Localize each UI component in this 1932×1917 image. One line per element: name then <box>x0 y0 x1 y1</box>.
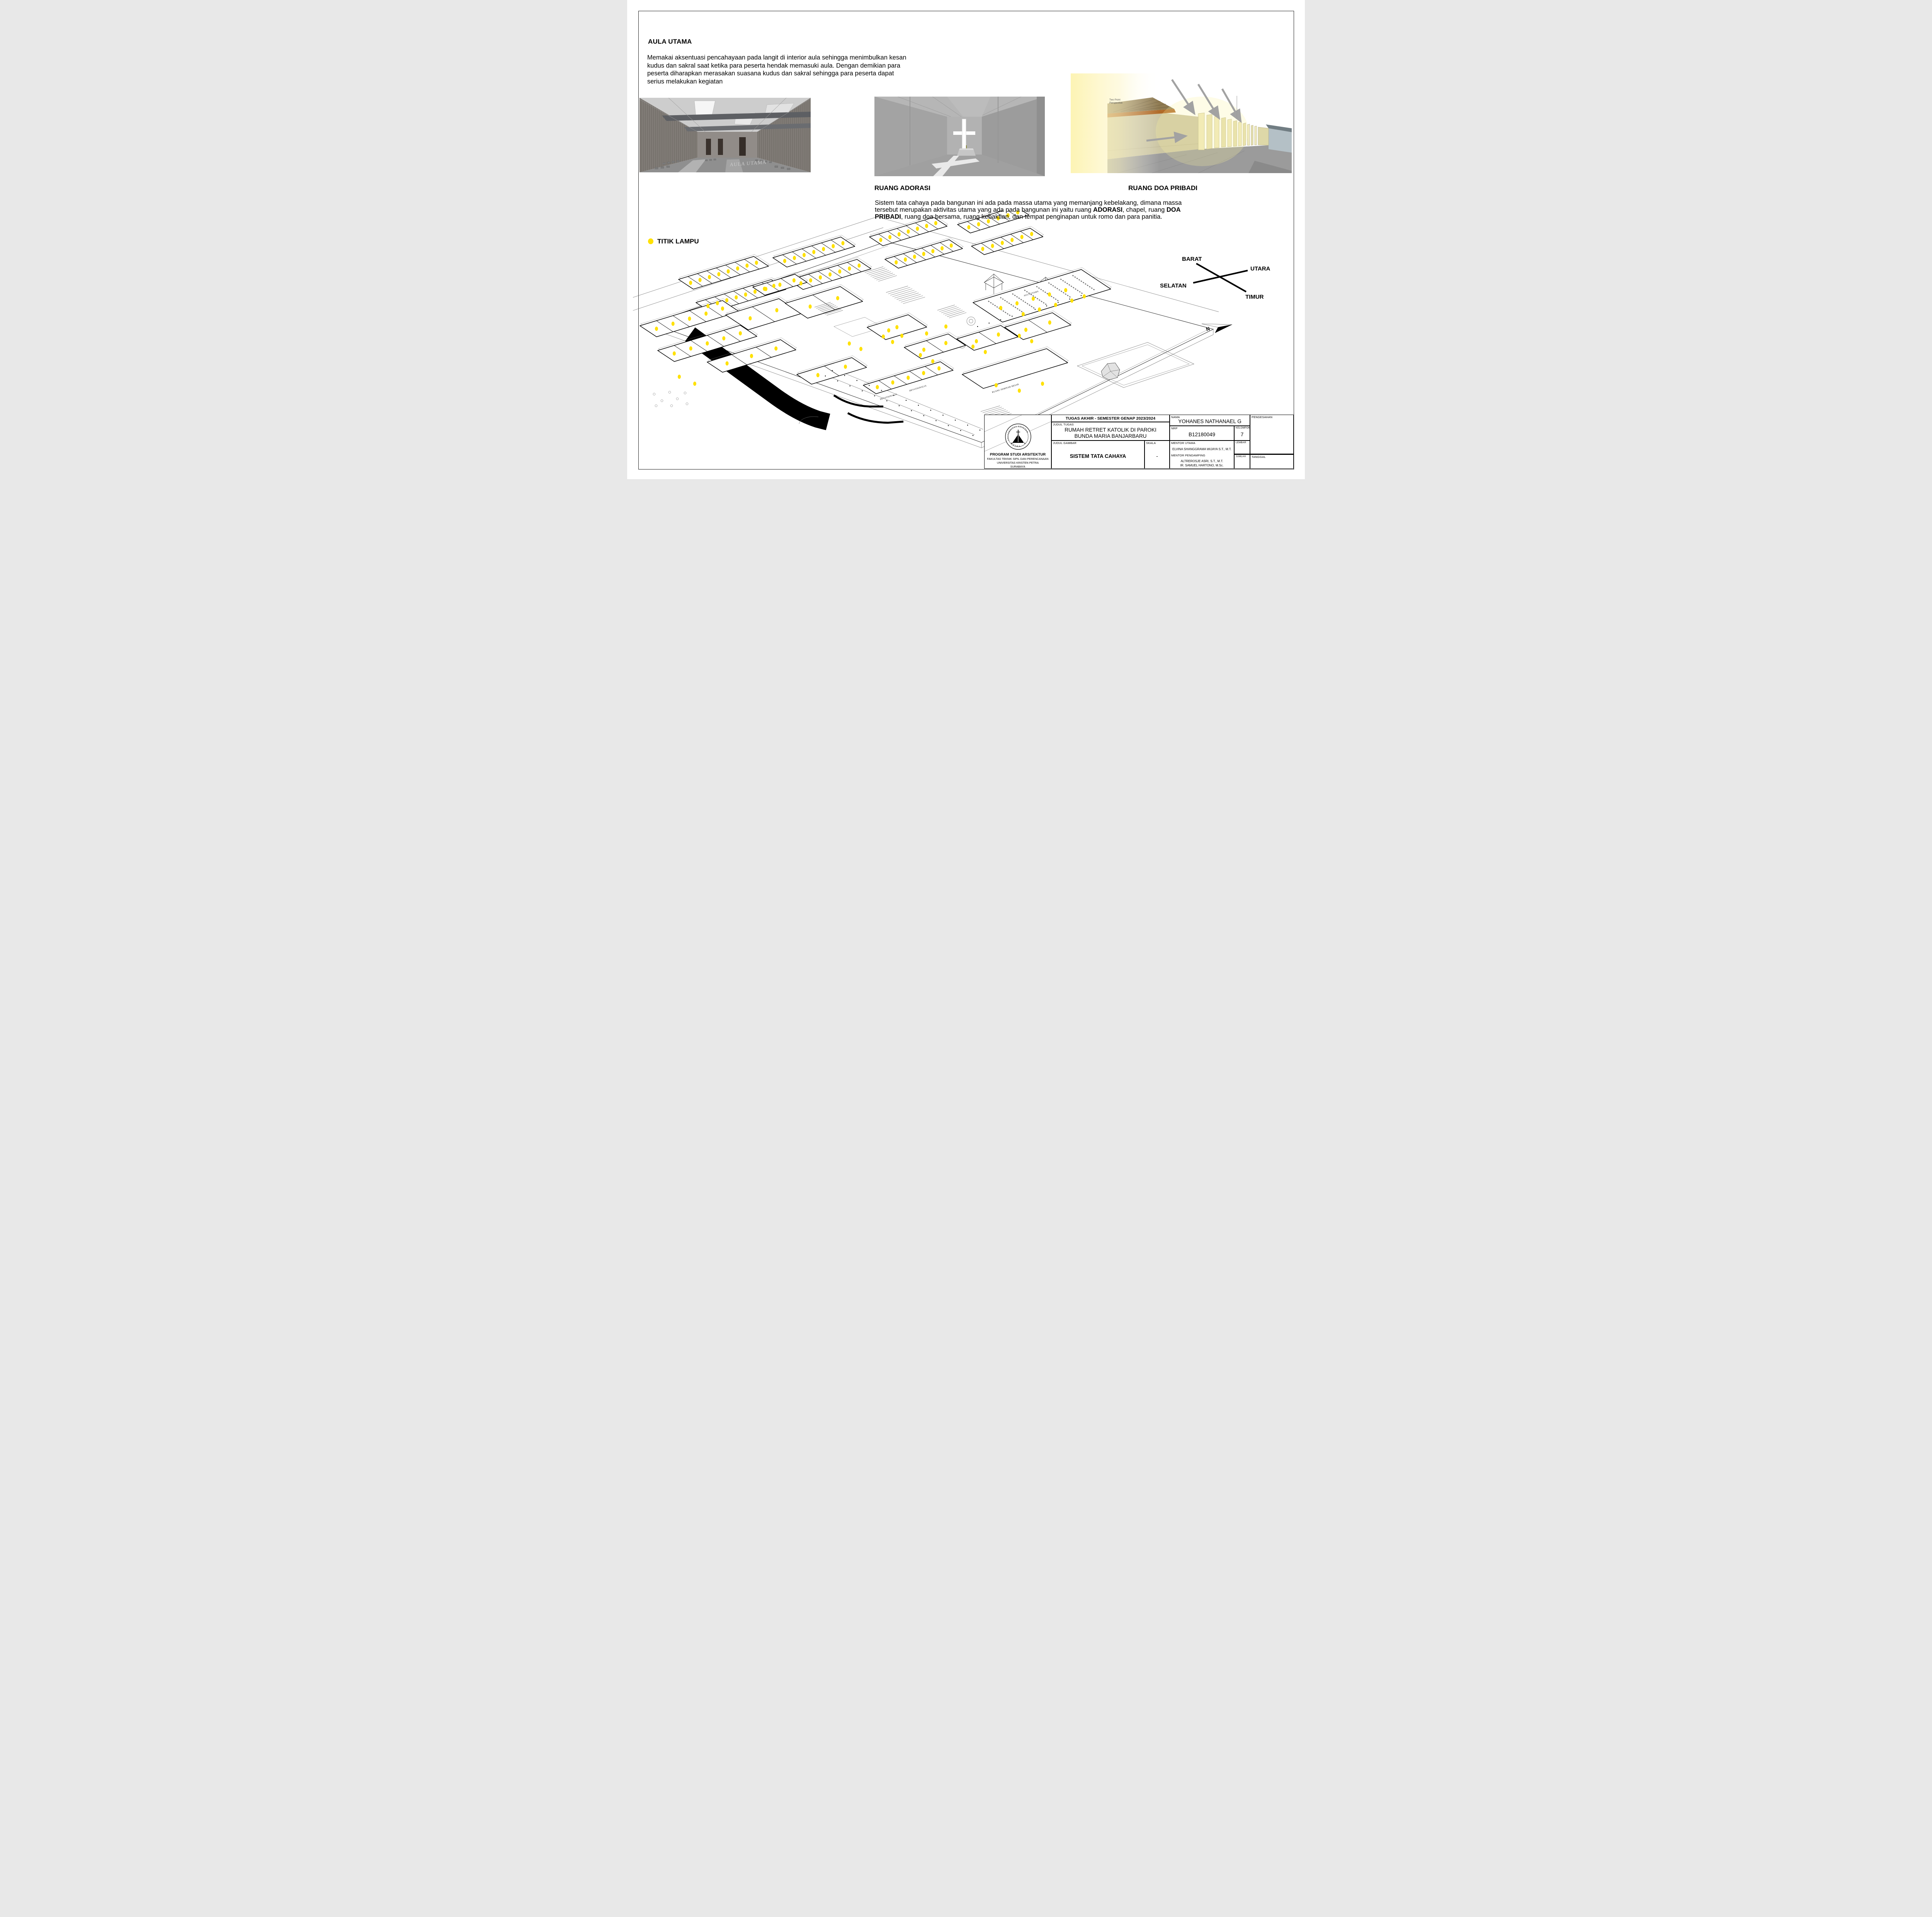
lamp-legend-dot <box>648 238 653 244</box>
presentation-sheet: AULA UTAMARUANG SEMINAR BESARDEVOTIONALI… <box>627 0 1305 479</box>
mentor-pendamping-value-1: ALTREROSJE ASRI, S.T., M.T. <box>1170 459 1234 463</box>
mentor-utama-value: ELVINA SHANGGRAMA WIJAYA S.T., M.T. <box>1170 447 1234 451</box>
judul-gambar-cell: JUDUL GAMBAR SISTEM TATA CAHAYA <box>1051 441 1145 469</box>
project-header: TUGAS AKHIR - SEMESTER GENAP 2023/2024 <box>1052 416 1169 421</box>
render-note: Two Point Perspective <box>1109 99 1122 104</box>
jumlah-cell: JUMLAH <box>1234 454 1250 469</box>
judul-tugas-value-1: RUMAH RETRET KATOLIK DI PAROKI <box>1052 427 1169 433</box>
render-aula-utama-interior: AULA UTAMA <box>639 98 811 172</box>
institution-line3: UNIVERSITAS KRISTEN PETRA <box>985 461 1051 464</box>
tanggal-cell: TANGGAL <box>1250 454 1294 469</box>
project-header-cell: TUGAS AKHIR - SEMESTER GENAP 2023/2024 <box>1051 415 1170 422</box>
institution-cell: UNIVERSITAS KRISTEN PETRA PROGRAM STUDI … <box>984 415 1051 469</box>
mentor-cell: MENTOR UTAMA ELVINA SHANGGRAMA WIJAYA S.… <box>1170 441 1234 469</box>
university-seal: UNIVERSITAS KRISTEN PETRA <box>1005 424 1031 449</box>
institution-line4: SURABAYA <box>985 465 1051 468</box>
lembar-cell: LEMBAR <box>1234 441 1250 454</box>
right-wall-edge <box>1037 97 1045 176</box>
north-arrow: N <box>1199 319 1238 337</box>
paragraph-tata-cahaya: Sistem tata cahaya pada bangunan ini ada… <box>875 199 1199 221</box>
compass-west: BARAT <box>1182 256 1202 262</box>
render-ruang-adorasi-corridor <box>874 97 1045 176</box>
nrp-cell: NRP B12180049 <box>1170 426 1234 441</box>
compass: BARAT UTARA SELATAN TIMUR <box>1156 250 1284 304</box>
judul-gambar-value: SISTEM TATA CAHAYA <box>1052 453 1144 459</box>
north-letter: N <box>1205 326 1211 332</box>
light-glow <box>1071 73 1160 173</box>
skala-cell: SKALA - <box>1145 441 1170 469</box>
render-ruang-doa-pribadi-exterior: Two Point Perspective <box>1071 73 1292 173</box>
pengesahan-cell: PENGESAHAN <box>1250 415 1294 454</box>
skala-value: - <box>1145 453 1169 459</box>
compass-north: UTARA <box>1250 265 1270 272</box>
caption-ruang-adorasi: RUANG ADORASI <box>874 184 930 192</box>
institution-line1: PROGRAM STUDI ARSITEKTUR <box>985 452 1051 457</box>
lounge-tables <box>653 391 688 407</box>
lamp-legend-label: TITIK LAMPU <box>657 238 699 245</box>
judul-tugas-cell: JUDUL TUGAS RUMAH RETRET KATOLIK DI PARO… <box>1051 422 1170 441</box>
nrp-value: B12180049 <box>1170 432 1234 437</box>
kelompok-cell: KELOMPOK 7 <box>1234 426 1250 441</box>
nama-value: YOHANES NATHANAEL G <box>1170 418 1250 424</box>
caption-ruang-doa-pribadi: RUANG DOA PRIBADI <box>1128 184 1197 192</box>
heading-aula-utama: AULA UTAMA <box>648 38 692 46</box>
title-block: UNIVERSITAS KRISTEN PETRA PROGRAM STUDI … <box>984 415 1294 469</box>
nama-cell: NAMA YOHANES NATHANAEL G <box>1170 415 1250 426</box>
judul-tugas-value-2: BUNDA MARIA BANJARBARU <box>1052 433 1169 439</box>
paragraph-aula-utama: Memakai aksentuasi pencahayaan pada lang… <box>647 54 918 85</box>
kelompok-value: 7 <box>1235 432 1250 437</box>
institution-line2: FAKULTAS TEKNIK SIPIL DAN PERENCANAAN <box>985 457 1051 461</box>
compass-south: SELATAN <box>1160 282 1187 289</box>
compass-east: TIMUR <box>1245 294 1264 300</box>
mentor-pendamping-value-2: IR. SAMUEL HARTONO, M.Sc. <box>1170 464 1234 467</box>
